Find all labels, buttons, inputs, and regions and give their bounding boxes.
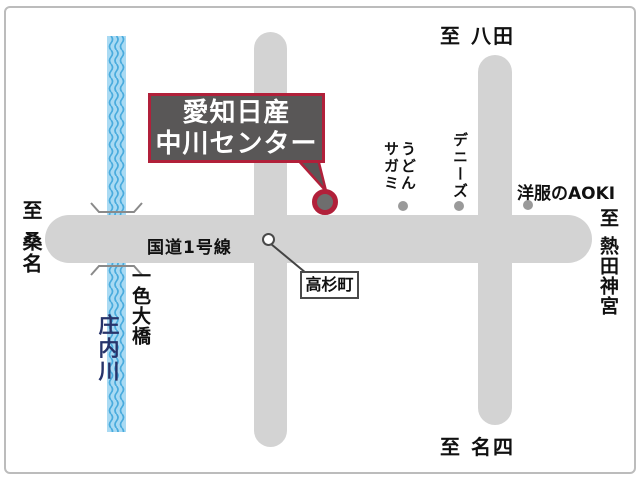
landmark-aoki: 洋服のAOKI: [517, 179, 615, 204]
landmark-udon-sagami-line2: サガミ: [382, 141, 400, 192]
direction-south-meishi: 至 名四: [440, 431, 515, 460]
intersection-dot-icon: [262, 233, 275, 246]
route1-label: 国道1号線: [147, 233, 232, 258]
destination-callout: 愛知日産 中川センター: [148, 93, 325, 163]
landmark-dennys: デニーズ: [450, 132, 471, 204]
landmark-dot-sagami-icon: [398, 201, 408, 211]
destination-marker-icon: [312, 189, 338, 215]
callout-tail: [297, 159, 326, 191]
landmark-udon-sagami: うどんサガミ: [382, 141, 416, 203]
bridge-name-isshiki-ohashi: 一色大橋: [127, 266, 154, 348]
direction-west-kuwana: 至 桑名: [17, 200, 46, 335]
landmark-dot-dennys-icon: [454, 201, 464, 211]
road-vertical-hatta-meishi: [478, 55, 512, 425]
direction-east-atsuta-jingu: 至 熱田神宮: [595, 208, 622, 368]
landmark-dot-aoki-icon: [523, 200, 533, 210]
landmark-udon-sagami-line1: うどん: [399, 141, 417, 192]
intersection-label-takasugicho: 高杉町: [300, 271, 359, 299]
direction-north-hatta: 至 八田: [440, 20, 515, 49]
river-name-shonaigawa: 庄内川: [93, 314, 123, 400]
access-map: 愛知日産 中川センター 国道1号線 至 桑名 至 八田 至 熱田神宮 至 名四 …: [0, 0, 640, 480]
destination-name-line1: 愛知日産: [151, 98, 322, 129]
destination-name-line2: 中川センター: [151, 129, 322, 160]
